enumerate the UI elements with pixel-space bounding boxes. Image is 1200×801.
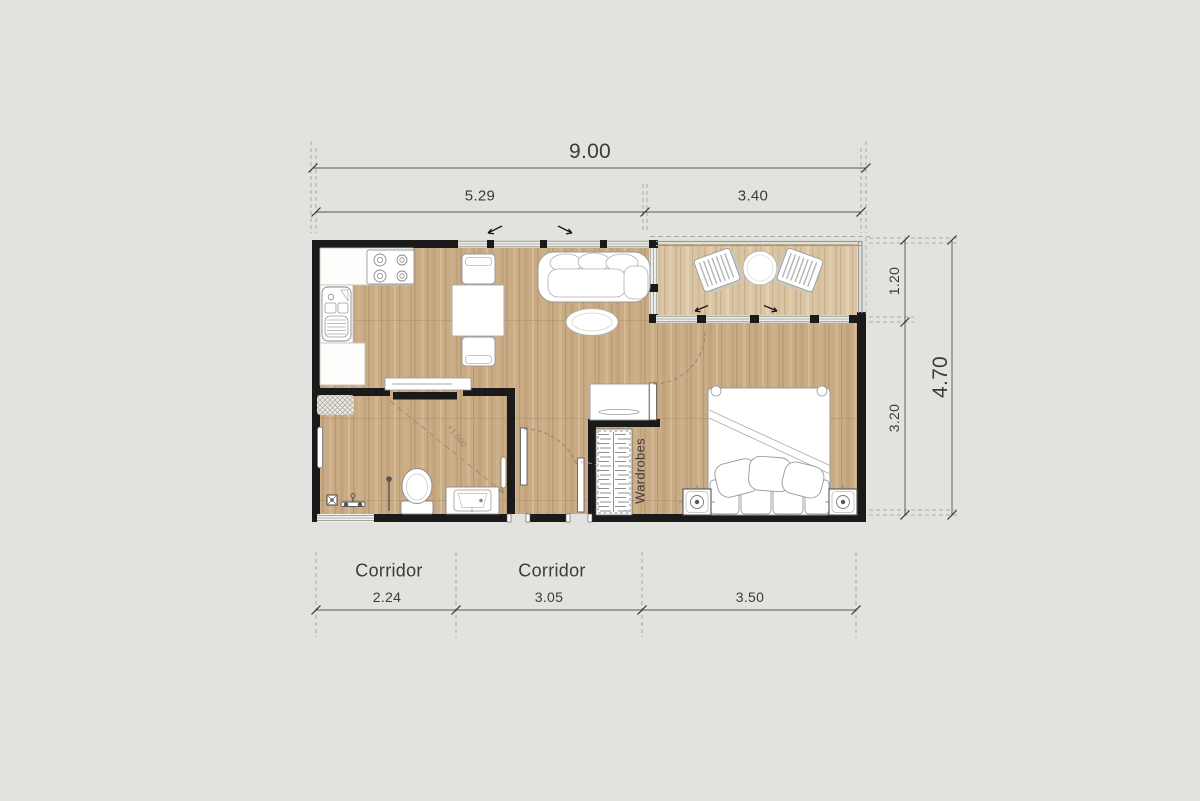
towel-rail-icon <box>501 457 506 488</box>
bedroom-window-icon <box>656 315 857 323</box>
dim-corridor-2-label: 3.05 <box>535 589 563 605</box>
entrance-door-leaf <box>578 458 585 512</box>
dim-balcony-depth-label: 1.20 <box>886 267 902 295</box>
patio-table-icon <box>743 251 777 285</box>
corridor-door-leaf <box>521 428 528 485</box>
wall-top <box>312 240 452 248</box>
bathroom-window-icon <box>317 514 374 522</box>
bathroom-vanity-icon <box>446 487 499 514</box>
wall-bottom-2 <box>530 514 570 522</box>
nightstand-icon <box>679 485 715 515</box>
dim-living-width-label: 5.29 <box>465 188 495 205</box>
bed-icon <box>708 386 831 515</box>
dim-bedroom-depth-label: 3.20 <box>886 404 902 432</box>
doormat-icon <box>317 395 354 415</box>
stove-icon <box>367 250 414 284</box>
wall-bathroom-east <box>507 388 515 514</box>
corridor-label: Corridor <box>518 561 585 582</box>
wall-right <box>857 312 866 522</box>
dim-total-width-label: 9.00 <box>569 140 611 164</box>
dim-balcony-width-label: 3.40 <box>738 188 768 205</box>
wardrobe-icon <box>596 429 632 515</box>
corridor-label: Corridor <box>355 561 422 582</box>
living-window-icon <box>452 240 656 248</box>
wall-bedroom-west <box>588 427 596 514</box>
wardrobes-label: Wardrobes <box>633 438 648 504</box>
bedroom-door-leaf <box>650 383 657 420</box>
floor-plan-drawing <box>0 0 1200 801</box>
floor-plan: 9.00 5.29 3.40 1.20 3.20 4.70 Corridor C… <box>0 0 1200 801</box>
wall-left <box>312 240 320 522</box>
kitchen-sink-icon <box>322 287 351 341</box>
dining-chair-icon <box>462 254 495 284</box>
sofa-icon <box>538 252 650 302</box>
floor-drain-icon <box>327 495 337 505</box>
coffee-table-icon <box>566 309 618 336</box>
dining-table-icon <box>452 285 504 336</box>
bedroom <box>590 384 857 515</box>
towel-rail-icon <box>318 427 323 468</box>
toilet-icon <box>401 469 433 515</box>
kitchen-cabinet-icon <box>320 343 365 385</box>
desk-icon <box>590 384 649 420</box>
dim-bedroom-width-label: 3.50 <box>736 589 764 605</box>
dim-corridor-1-label: 2.24 <box>373 589 401 605</box>
wall-bathroom-top-1 <box>312 388 390 396</box>
dining-chair-icon <box>462 337 495 366</box>
nightstand-icon <box>825 485 857 515</box>
dim-total-depth-label: 4.70 <box>929 356 953 398</box>
